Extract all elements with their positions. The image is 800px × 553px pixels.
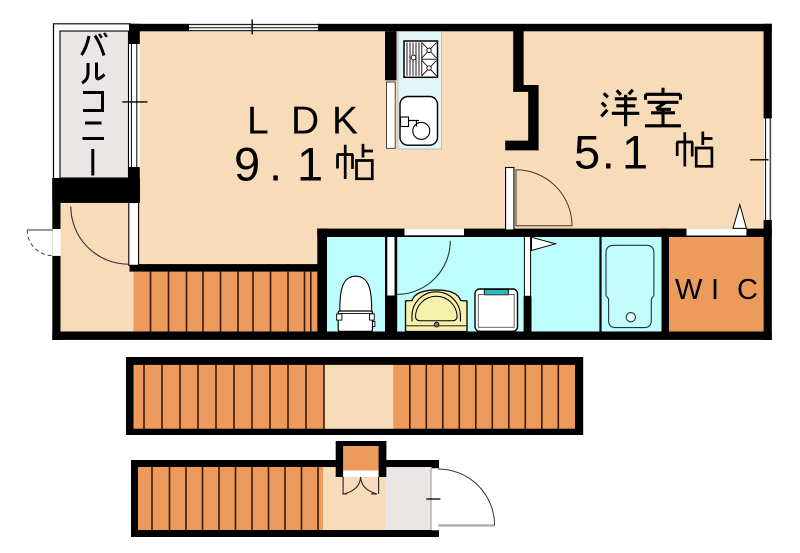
- svg-text:W: W: [675, 274, 703, 306]
- svg-text:.: .: [269, 138, 282, 191]
- svg-text:L: L: [247, 99, 269, 142]
- svg-text:K: K: [332, 99, 358, 142]
- svg-text:C: C: [737, 274, 758, 306]
- svg-text:5: 5: [574, 126, 600, 179]
- svg-text:D: D: [291, 99, 319, 142]
- svg-text:I: I: [711, 274, 719, 306]
- svg-text:1: 1: [622, 126, 648, 179]
- svg-text:.: .: [602, 126, 615, 179]
- svg-text:1: 1: [297, 138, 323, 191]
- svg-text:9: 9: [234, 138, 260, 191]
